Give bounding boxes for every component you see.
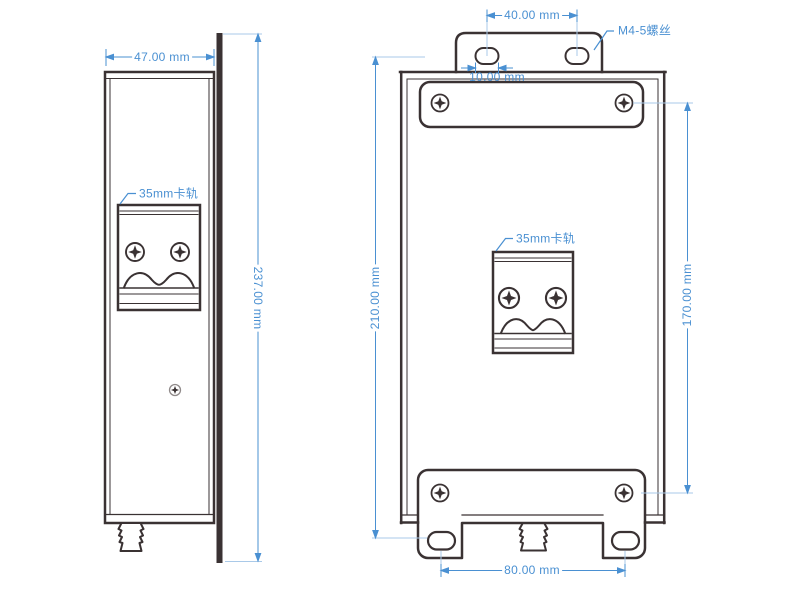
front-bottom-screw-right: [616, 485, 633, 502]
dim-label-side-height: 237.00 mm: [251, 265, 265, 332]
engineering-drawing-canvas: 47.00 mm 237.00 mm 35mm卡轨 40.00 mm 10.00…: [0, 0, 800, 600]
front-bottom-screw-left: [432, 485, 449, 502]
front-view: [400, 33, 666, 558]
front-din-clip: [493, 252, 573, 353]
side-din-rail-label: 35mm卡轨: [139, 185, 198, 202]
dim-label-front-right-height: 170.00 mm: [680, 262, 694, 329]
front-din-rail-label: 35mm卡轨: [516, 230, 575, 247]
front-bottom-slot-right: [612, 532, 639, 550]
side-rear-flange: [217, 33, 223, 563]
side-clip-screw-left: [126, 243, 144, 261]
front-bottom-slot-left: [428, 532, 455, 550]
front-top-screw-left: [432, 95, 449, 112]
side-view: [105, 33, 223, 563]
side-din-clip: [118, 205, 200, 310]
side-small-screw: [170, 385, 181, 396]
front-top-tab: [456, 33, 602, 72]
front-top-bracket: [420, 82, 643, 127]
dim-label-top-slot-spacing: 40.00 mm: [502, 8, 562, 22]
front-screw-label: M4-5螺丝: [618, 22, 671, 39]
dim-label-front-left-height: 210.00 mm: [368, 265, 382, 332]
front-clip-screw-right: [546, 288, 566, 308]
dim-label-slot-width: 10.00 mm: [469, 70, 525, 84]
front-top-screw-right: [616, 95, 633, 112]
dim-label-bottom-slot-spacing: 80.00 mm: [502, 563, 562, 577]
front-latch-tab: [520, 525, 548, 551]
dim-label-side-width: 47.00 mm: [132, 50, 192, 64]
side-clip-screw-right: [171, 243, 189, 261]
front-din-label-leader: [496, 239, 513, 252]
front-clip-screw-left: [499, 288, 519, 308]
side-latch-tab: [119, 524, 144, 551]
